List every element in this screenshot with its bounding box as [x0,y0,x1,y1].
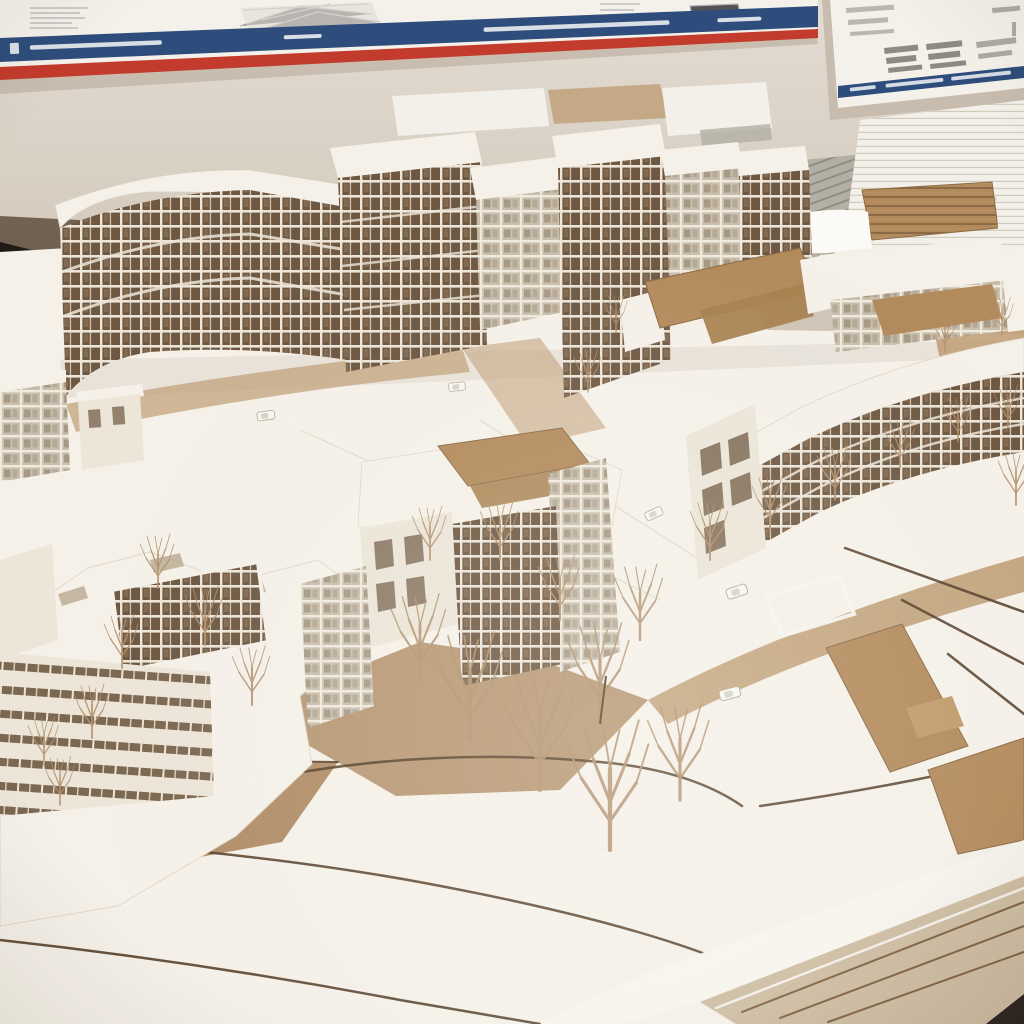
photo-architectural-model: Photograph of a cardboard architectural … [0,0,1024,1024]
vignette [0,0,1024,1024]
scene-svg: Photograph of a cardboard architectural … [0,0,1024,1024]
